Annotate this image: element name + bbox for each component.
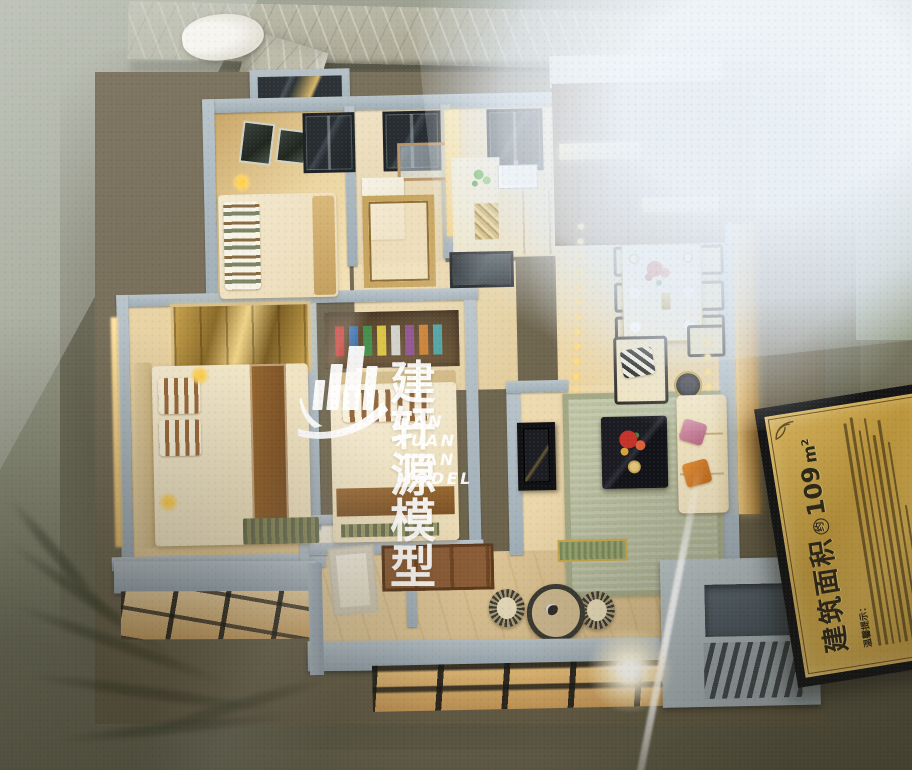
lens-glare — [586, 626, 674, 714]
glare-sparkle — [588, 666, 672, 669]
buildings-swoosh-logo-icon — [298, 336, 390, 442]
model-display-photo: 建筑面积 约 109 m² 温馨提示： — [0, 0, 912, 770]
glass-sheen-diagonal — [0, 0, 912, 770]
brand-name-en: JIAN XUAN YUAN MODEL — [396, 412, 473, 488]
